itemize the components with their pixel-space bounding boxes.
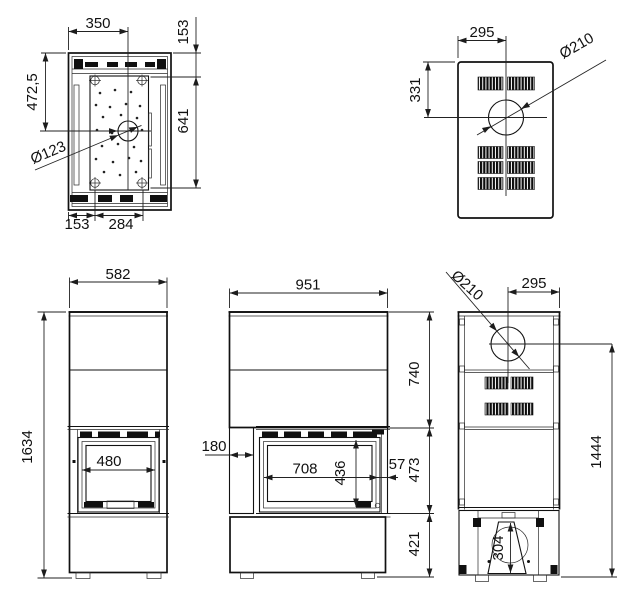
base-box	[230, 517, 386, 573]
base-corner-left	[473, 518, 481, 527]
stove-dimension-drawing: 350 153 472,5 641 Ø123 153 284	[0, 0, 618, 602]
dim-label-582: 582	[105, 266, 130, 283]
technical-drawing-page: 350 153 472,5 641 Ø123 153 284	[0, 0, 618, 602]
top-section-view: 350 153 472,5 641 Ø123 153 284	[24, 15, 201, 233]
back-view: 295 Ø210 1444 304	[446, 267, 617, 581]
dim-label-473: 473	[406, 457, 423, 482]
rear-panel-outline	[458, 62, 553, 218]
side-door-frame	[260, 438, 381, 513]
foot-left	[76, 573, 90, 579]
dim-label-436: 436	[332, 460, 349, 485]
dim-label-331: 331	[407, 77, 424, 102]
foot-left	[476, 575, 489, 582]
latch-top	[372, 430, 384, 435]
dim-label-708: 708	[292, 461, 317, 478]
back-dimensions: 295 Ø210 1444 304	[446, 267, 617, 577]
grate-right	[138, 502, 154, 508]
latch-bottom	[356, 502, 371, 508]
dim-label-153-top: 153	[175, 19, 192, 44]
hinge-left	[73, 460, 76, 463]
screw-hole-pattern	[95, 89, 144, 177]
dim-label-951: 951	[295, 277, 320, 294]
base-bottom-left	[460, 565, 467, 574]
base-notch	[502, 513, 515, 519]
dim-label-284: 284	[108, 216, 133, 233]
rear-vent-grille	[485, 377, 533, 415]
base-corner-right	[536, 518, 544, 527]
dim-label-dia123: Ø123	[28, 138, 68, 168]
front-view: 582 1634 480	[19, 266, 169, 579]
dim-label-295-back: 295	[521, 275, 546, 292]
dim-label-153-bottom: 153	[64, 216, 89, 233]
dim-label-421: 421	[406, 531, 423, 556]
dim-label-180: 180	[201, 438, 226, 455]
base-bottom-right	[551, 565, 558, 574]
top-rear-dimensions: 295 331 Ø210	[407, 24, 606, 196]
dim-label-295: 295	[469, 24, 494, 41]
side-view: 951 180 708 436 57 740 473 421	[201, 277, 434, 579]
top-rear-panel-view: 295 331 Ø210	[407, 24, 606, 218]
body-outline	[70, 312, 168, 573]
foot-right	[147, 573, 161, 579]
left-wall-channel	[74, 85, 79, 185]
front-corner-block-left	[74, 59, 83, 69]
hinge-ticks	[460, 319, 559, 505]
ash-tray	[107, 501, 134, 509]
dim-label-1444: 1444	[588, 435, 605, 468]
hinge-right	[163, 460, 166, 463]
foot-right	[534, 575, 547, 582]
dim-label-472-5: 472,5	[24, 73, 41, 111]
inner-casing	[72, 57, 168, 207]
right-wall-channel	[161, 85, 166, 185]
dim-label-dia210: Ø210	[557, 30, 597, 63]
dim-label-641: 641	[175, 108, 192, 133]
front-column	[230, 428, 254, 514]
dim-label-304: 304	[490, 535, 507, 560]
front-corner-block-right	[157, 59, 166, 69]
side-bracket-upper	[149, 113, 152, 146]
dim-label-57: 57	[389, 456, 406, 473]
dim-label-dia210-back: Ø210	[448, 267, 487, 304]
flue-leader-line	[477, 60, 606, 135]
foot-front	[241, 573, 254, 579]
grate-left	[84, 502, 103, 508]
foot-rear	[362, 573, 375, 579]
side-bracket-lower	[149, 149, 152, 178]
dim-label-350: 350	[85, 15, 110, 32]
dim-label-1634: 1634	[19, 430, 36, 463]
dim-label-480: 480	[96, 453, 121, 470]
dim-label-740: 740	[406, 361, 423, 386]
